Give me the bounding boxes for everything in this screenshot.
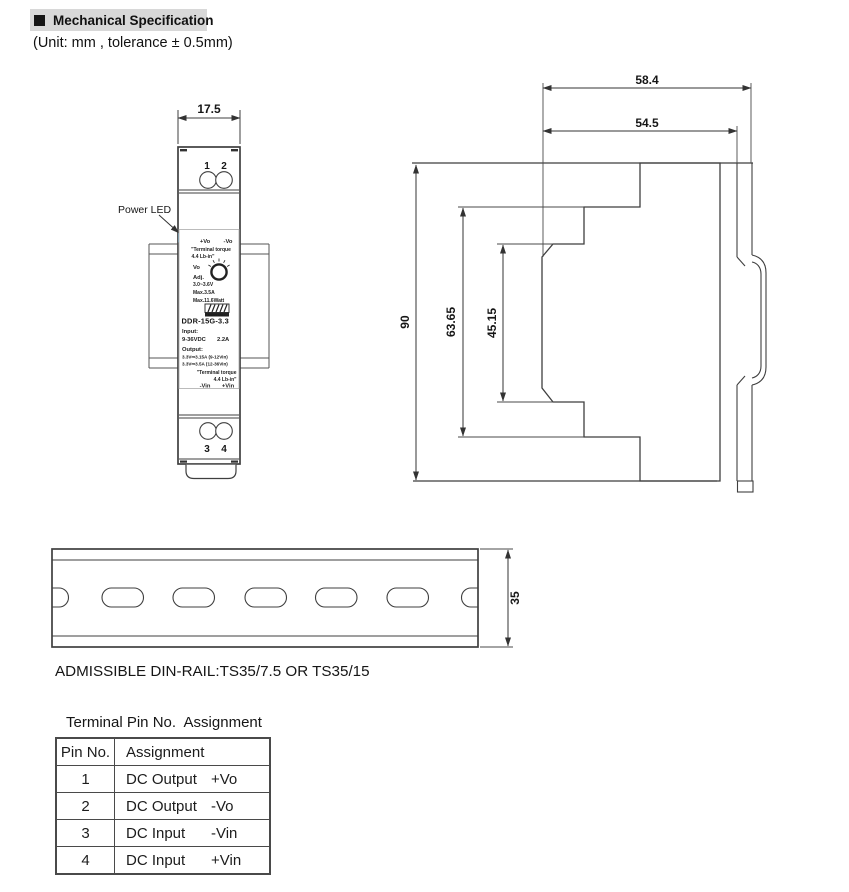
pin-assignment: DC Input -Vin — [115, 820, 269, 846]
model-number: DDR-15G-3.3 — [182, 317, 229, 326]
brand-logo: MEAN WELL — [205, 304, 229, 317]
pin-table-title: Terminal Pin No. Assignment — [66, 714, 262, 731]
table-row: 3 DC Input -Vin — [57, 819, 269, 846]
din-rail-drawing: 35 — [45, 540, 540, 652]
label-max-current: Max.3.5A — [193, 290, 215, 296]
label-input-voltage: 9-36VDC — [182, 337, 207, 343]
section-title: Mechanical Specification — [53, 13, 214, 28]
label-vo-plus: +Vo — [200, 239, 211, 245]
label-output: Output: — [182, 347, 203, 353]
admissible-rail-note: ADMISSIBLE DIN-RAIL:TS35/7.5 OR TS35/15 — [55, 663, 370, 680]
terminal-3-label: 3 — [204, 444, 210, 455]
terminal-4-label: 4 — [221, 444, 227, 455]
header-assignment: Assignment — [115, 739, 269, 765]
header-pin-no: Pin No. — [57, 739, 115, 765]
pin-function: DC Input — [126, 852, 211, 869]
side-view-drawing: 58.4 54.5 90 63.65 45.15 — [395, 68, 790, 510]
pin-number: 3 — [57, 820, 115, 846]
pin-number: 1 — [57, 766, 115, 792]
table-row: 4 DC Input +Vin — [57, 846, 269, 873]
pin-assignment: DC Input +Vin — [115, 847, 269, 873]
dim-body-step: 63.65 — [444, 307, 458, 337]
dim-depth-with-rail: 58.4 — [635, 73, 659, 87]
table-header-row: Pin No. Assignment — [57, 739, 269, 765]
pin-assignment: DC Output +Vo — [115, 766, 269, 792]
terminal-1-label: 1 — [204, 161, 210, 172]
dim-height: 90 — [398, 315, 412, 329]
label-vin-minus: -Vin — [200, 384, 211, 390]
front-width-dim-text: 17.5 — [197, 102, 221, 116]
label-torque2-2: 4.4 Lb-in" — [214, 377, 238, 383]
dim-recess: 45.15 — [485, 308, 499, 338]
table-row: 2 DC Output -Vo — [57, 792, 269, 819]
pin-function: DC Output — [126, 771, 211, 788]
pin-function: DC Output — [126, 798, 211, 815]
label-output-2: 3.3V⎓3.5A (12-36Vin) — [182, 362, 228, 367]
label-vo: Vo — [193, 265, 200, 271]
label-vin-plus: +Vin — [222, 384, 235, 390]
rail-cross-section — [737, 163, 766, 492]
label-adj-range: 3.0~3.6V — [193, 282, 214, 288]
section-header: Mechanical Specification — [30, 9, 207, 31]
rail-width-dim-text: 35 — [508, 591, 522, 605]
pin-signal: +Vin — [211, 852, 241, 869]
label-max-power: Max.11.6Watt — [193, 298, 225, 304]
section-marker-icon — [34, 15, 45, 26]
label-torque-1: "Terminal torque — [191, 247, 231, 253]
label-input-current: 2.2A — [217, 337, 230, 343]
power-led-leader-line — [159, 215, 179, 233]
pin-number: 2 — [57, 793, 115, 819]
power-led-label: Power LED — [118, 204, 172, 216]
terminal-2-label: 2 — [221, 161, 227, 172]
label-torque-2: 4.4 Lb-in" — [192, 254, 216, 260]
mechanical-specification-page: Mechanical Specification (Unit: mm , tol… — [0, 0, 849, 892]
dim-depth-case: 54.5 — [635, 116, 659, 130]
pin-assignment: DC Output -Vo — [115, 793, 269, 819]
pin-signal: +Vo — [211, 771, 237, 788]
label-adj: Adj. — [193, 275, 204, 281]
label-torque2-1: "Terminal torque — [197, 370, 237, 376]
side-body-profile — [542, 163, 720, 481]
front-view-drawing: 17.5 1 2 Power LED — [95, 95, 310, 485]
pin-signal: -Vin — [211, 825, 237, 842]
label-input: Input: — [182, 329, 198, 335]
din-clip-tab — [186, 465, 236, 479]
table-row: 1 DC Output +Vo — [57, 765, 269, 792]
label-vo-minus: -Vo — [224, 239, 233, 245]
pin-function: DC Input — [126, 825, 211, 842]
pin-number: 4 — [57, 847, 115, 873]
pin-assignment-table: Pin No. Assignment 1 DC Output +Vo 2 DC … — [55, 737, 271, 875]
pin-signal: -Vo — [211, 798, 234, 815]
rail-slots — [52, 588, 478, 607]
unit-note: (Unit: mm , tolerance ± 0.5mm) — [33, 35, 233, 51]
label-output-1: 3.3V⎓3.15A (9-12Vin) — [182, 355, 228, 360]
rail-body — [52, 549, 478, 647]
